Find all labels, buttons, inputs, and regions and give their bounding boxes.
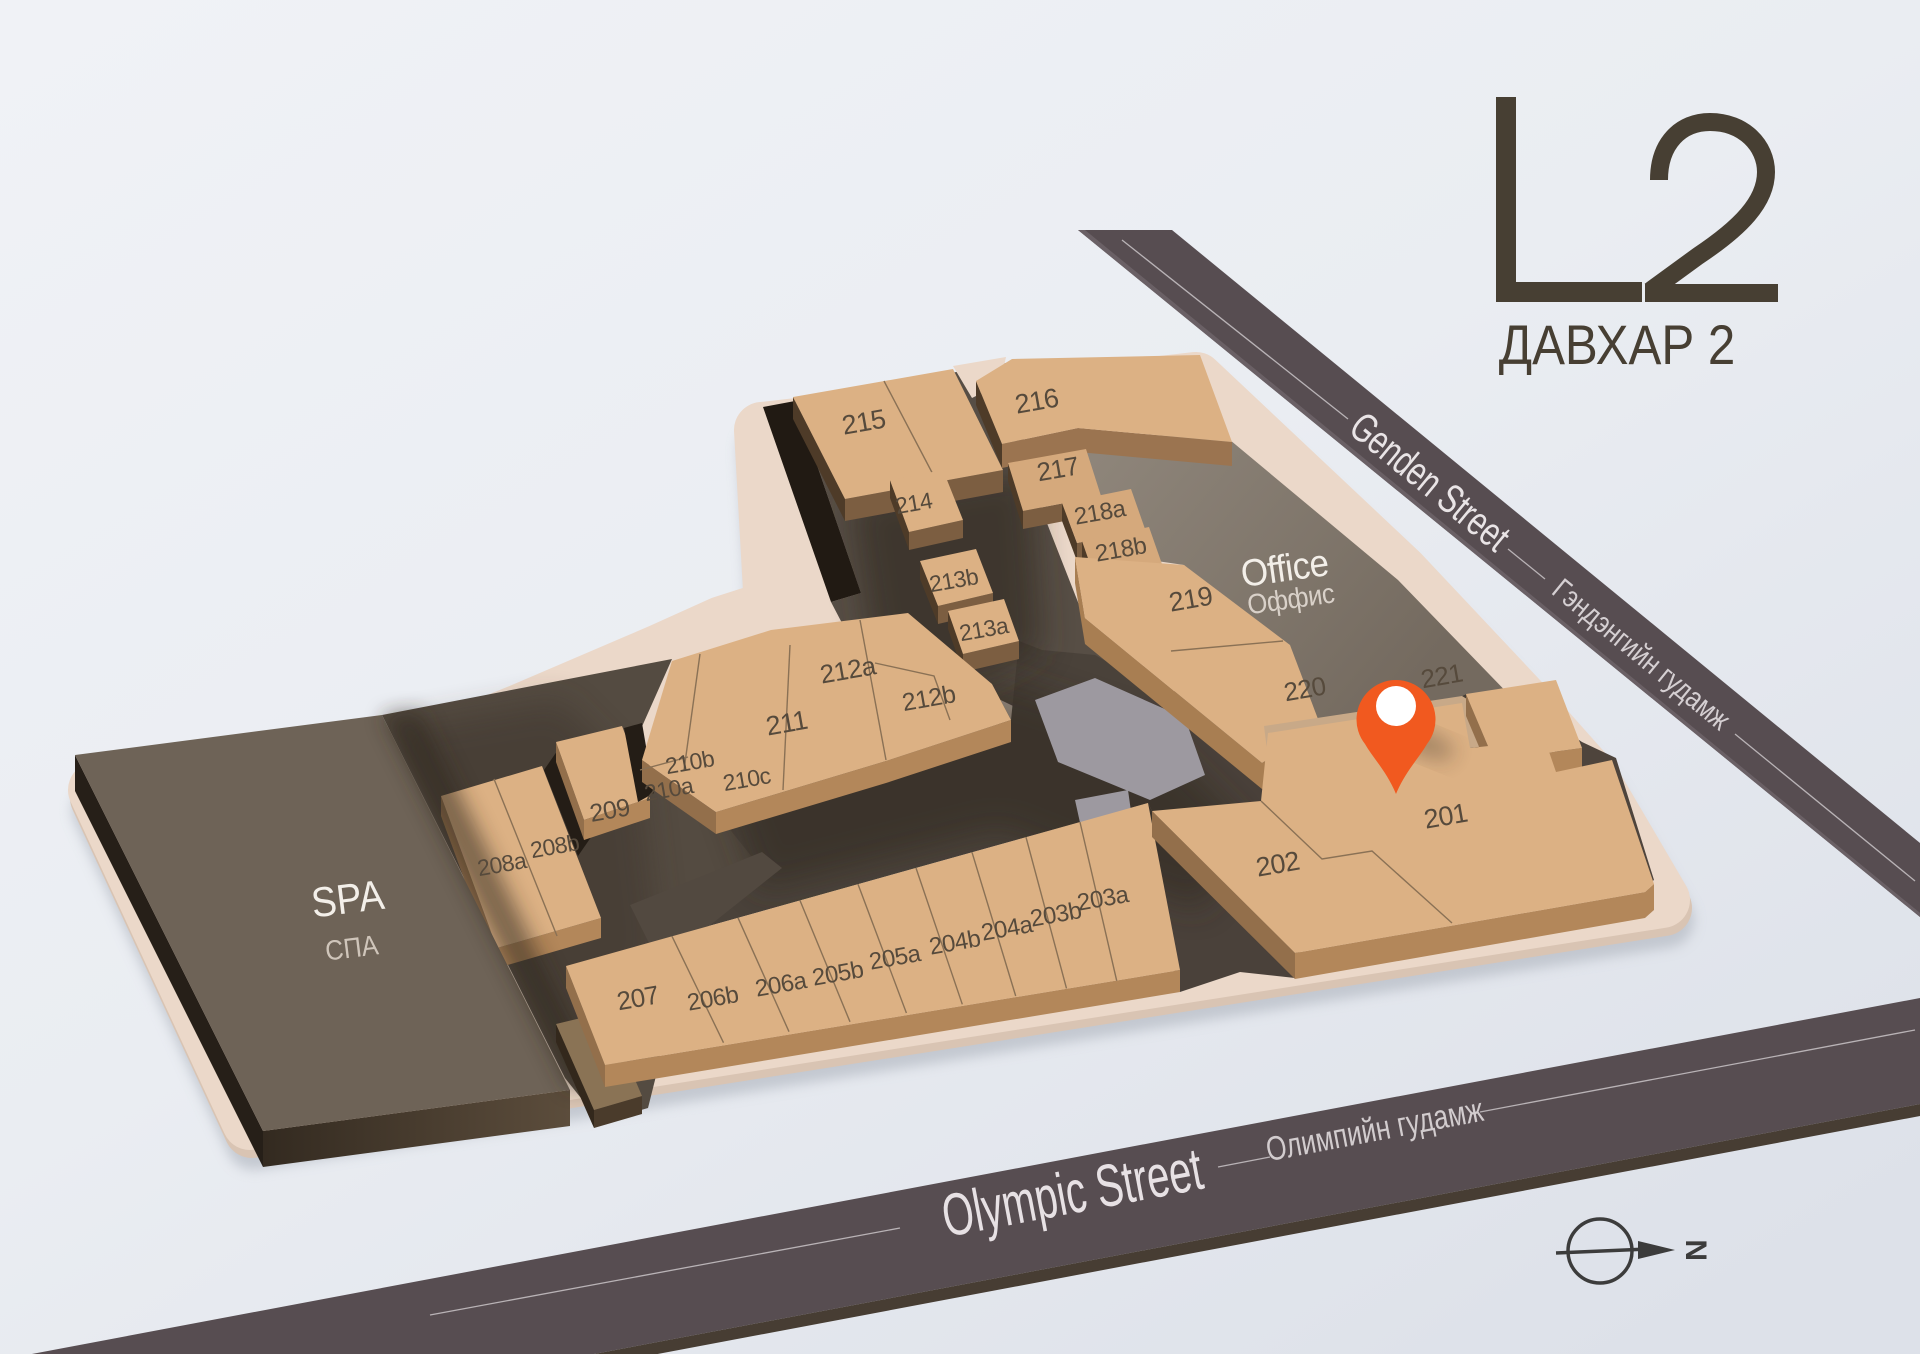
- svg-text:N: N: [1679, 1239, 1712, 1260]
- svg-text:SPA: SPA: [309, 872, 387, 927]
- svg-text:ДАВХАР 2: ДАВХАР 2: [1499, 314, 1736, 377]
- svg-text:СПА: СПА: [323, 929, 380, 967]
